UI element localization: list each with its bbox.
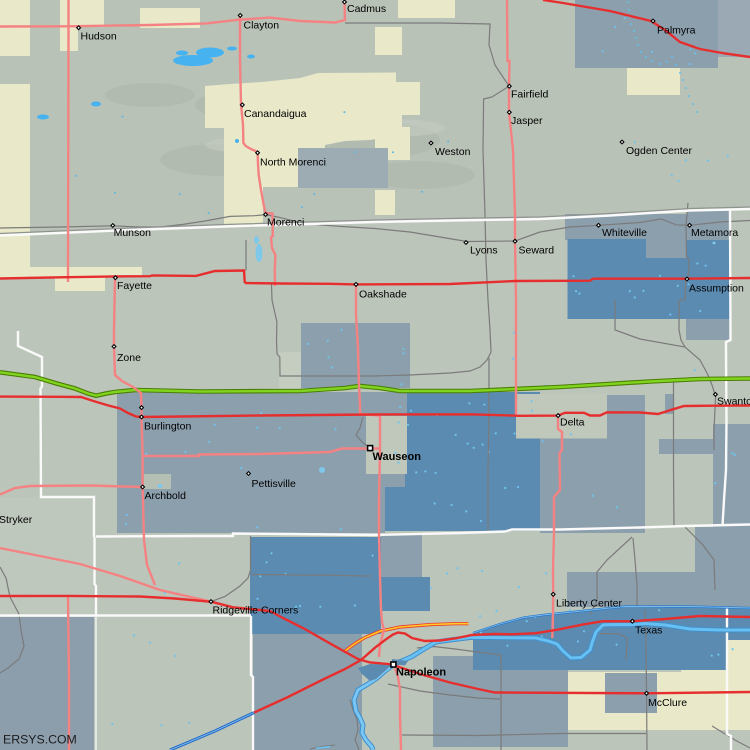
svg-text:Burlington: Burlington (144, 421, 191, 433)
svg-text:Stryker: Stryker (0, 514, 33, 526)
svg-text:Canandaigua: Canandaigua (244, 108, 307, 120)
svg-text:Seward: Seward (519, 245, 555, 257)
svg-text:Swanton: Swanton (717, 396, 750, 408)
svg-text:Texas: Texas (635, 625, 662, 637)
svg-text:North Morenci: North Morenci (260, 157, 326, 169)
svg-text:Weston: Weston (435, 146, 471, 158)
svg-text:Fairfield: Fairfield (511, 89, 549, 101)
svg-text:Zone: Zone (117, 352, 141, 364)
svg-text:Assumption: Assumption (689, 283, 744, 295)
svg-text:Whiteville: Whiteville (602, 227, 647, 239)
svg-text:Cadmus: Cadmus (347, 3, 386, 15)
svg-text:McClure: McClure (648, 697, 687, 709)
svg-text:Jasper: Jasper (511, 115, 543, 127)
svg-text:Munson: Munson (114, 227, 152, 239)
svg-text:Archbold: Archbold (145, 490, 187, 502)
svg-text:Liberty Center: Liberty Center (556, 598, 622, 610)
svg-text:Delta: Delta (560, 417, 585, 429)
svg-text:Ogden Center: Ogden Center (626, 145, 692, 157)
svg-text:Oakshade: Oakshade (359, 289, 407, 301)
svg-text:Napoleon: Napoleon (396, 667, 446, 679)
svg-text:Clayton: Clayton (244, 20, 280, 32)
svg-text:Wauseon: Wauseon (373, 451, 422, 463)
svg-text:Lyons: Lyons (470, 245, 498, 257)
svg-text:ERSYS.COM: ERSYS.COM (3, 733, 77, 747)
svg-text:Hudson: Hudson (81, 31, 117, 43)
svg-text:Fayette: Fayette (117, 280, 152, 292)
svg-text:Pettisville: Pettisville (252, 478, 297, 490)
svg-text:Ridgeville Corners: Ridgeville Corners (213, 605, 299, 617)
svg-text:Palmyra: Palmyra (657, 25, 696, 37)
svg-text:Metamora: Metamora (691, 227, 738, 239)
svg-text:Morenci: Morenci (267, 217, 304, 229)
